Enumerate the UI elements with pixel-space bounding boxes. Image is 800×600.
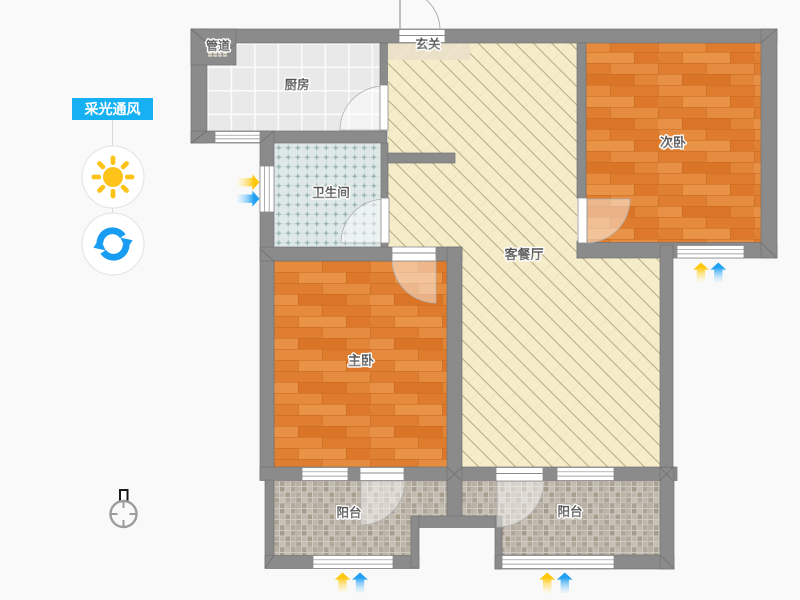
svg-text:采光通风: 采光通风 [84, 101, 141, 117]
svg-text:主卧: 主卧 [348, 353, 374, 368]
svg-text:玄关: 玄关 [415, 37, 441, 52]
svg-text:卫生间: 卫生间 [312, 185, 350, 200]
svg-text:管道: 管道 [206, 38, 230, 53]
svg-text:厨房: 厨房 [284, 77, 309, 92]
svg-text:客餐厅: 客餐厅 [504, 247, 543, 262]
svg-text:次卧: 次卧 [660, 135, 686, 150]
svg-text:阳台: 阳台 [557, 504, 582, 519]
svg-text:阳台: 阳台 [336, 505, 361, 520]
